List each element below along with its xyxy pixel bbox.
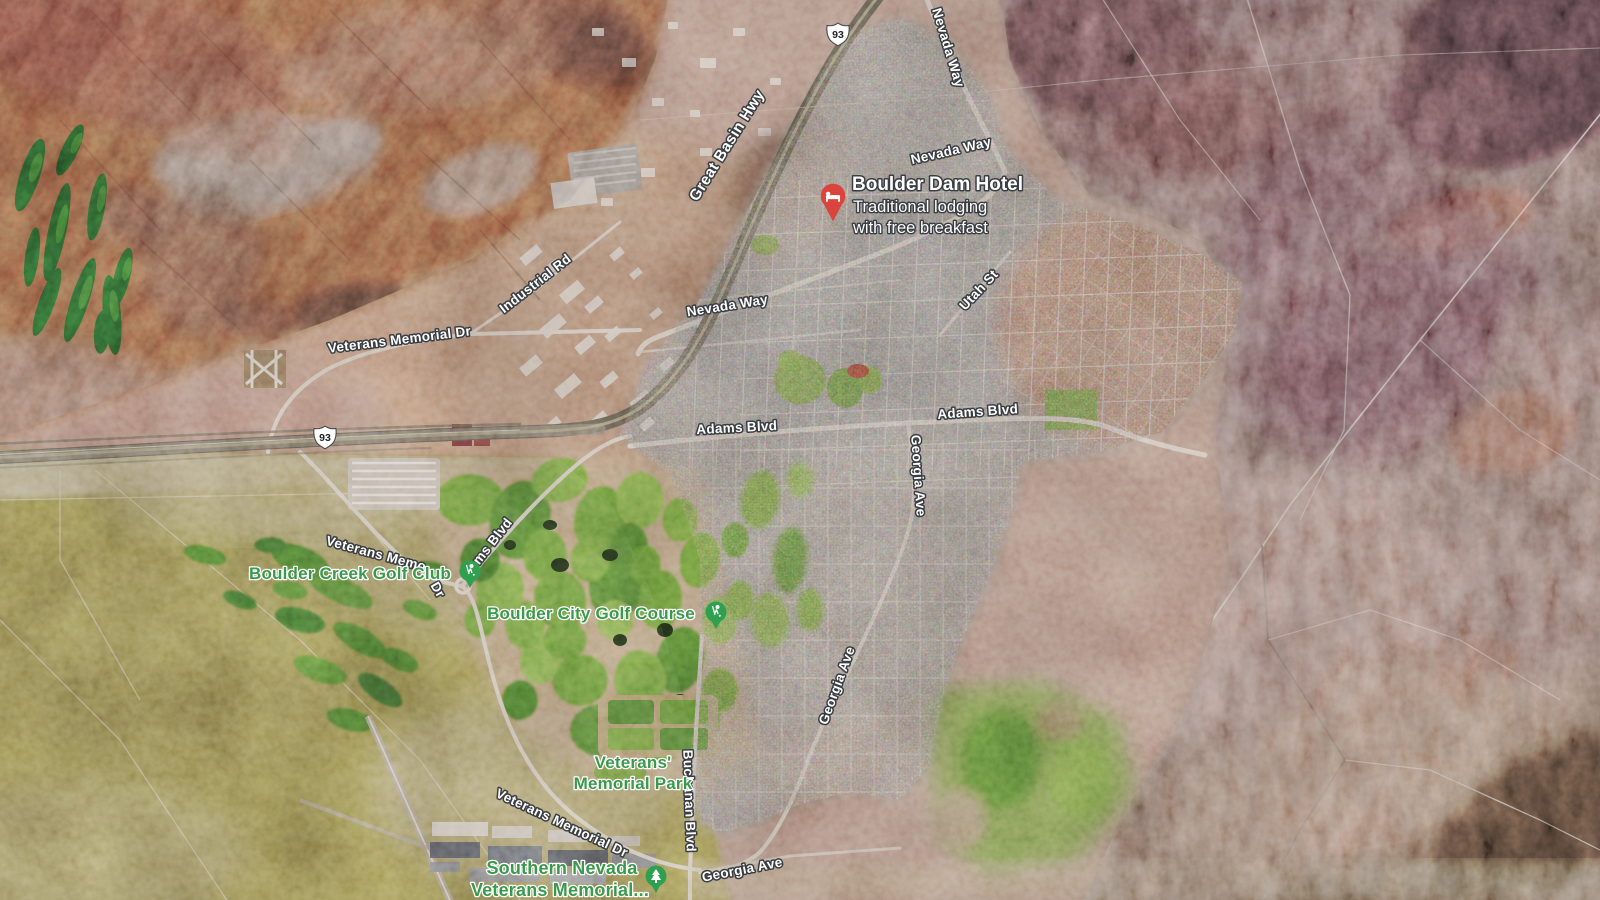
svg-text:with free breakfast: with free breakfast (852, 219, 988, 237)
svg-text:Nevada Way: Nevada Way (929, 6, 967, 89)
svg-text:Veterans Memorial Dr: Veterans Memorial Dr (493, 786, 630, 861)
svg-text:Boulder Creek Golf Club: Boulder Creek Golf Club (249, 564, 451, 583)
svg-text:ms Blvd: ms Blvd (470, 515, 515, 567)
svg-text:Georgia Ave: Georgia Ave (816, 644, 858, 726)
svg-text:93: 93 (832, 29, 844, 41)
svg-text:93: 93 (319, 432, 331, 444)
svg-text:Veterans Memorial...: Veterans Memorial... (471, 880, 649, 900)
svg-text:Nevada Way: Nevada Way (686, 292, 770, 320)
svg-text:Georgia Ave: Georgia Ave (908, 434, 929, 517)
svg-text:Industrial Rd: Industrial Rd (497, 251, 574, 316)
svg-text:Georgia Ave: Georgia Ave (701, 854, 784, 884)
svg-text:Veterans': Veterans' (595, 753, 672, 772)
svg-text:Adams Blvd: Adams Blvd (696, 418, 778, 437)
svg-text:Traditional lodging: Traditional lodging (853, 198, 987, 216)
svg-text:Utah St: Utah St (956, 267, 1001, 313)
svg-text:Boulder City Golf Course: Boulder City Golf Course (487, 604, 695, 623)
svg-text:Buchanan Blvd: Buchanan Blvd (680, 750, 699, 853)
svg-text:Memorial Park: Memorial Park (574, 774, 693, 793)
svg-text:Veterans Memorial Dr: Veterans Memorial Dr (327, 323, 472, 355)
svg-text:Southern Nevada: Southern Nevada (486, 858, 638, 878)
svg-text:Adams Blvd: Adams Blvd (937, 401, 1019, 422)
svg-text:Boulder Dam Hotel: Boulder Dam Hotel (852, 174, 1023, 195)
svg-text:Great Basin Hwy: Great Basin Hwy (686, 87, 768, 204)
svg-text:Nevada Way: Nevada Way (909, 134, 992, 167)
